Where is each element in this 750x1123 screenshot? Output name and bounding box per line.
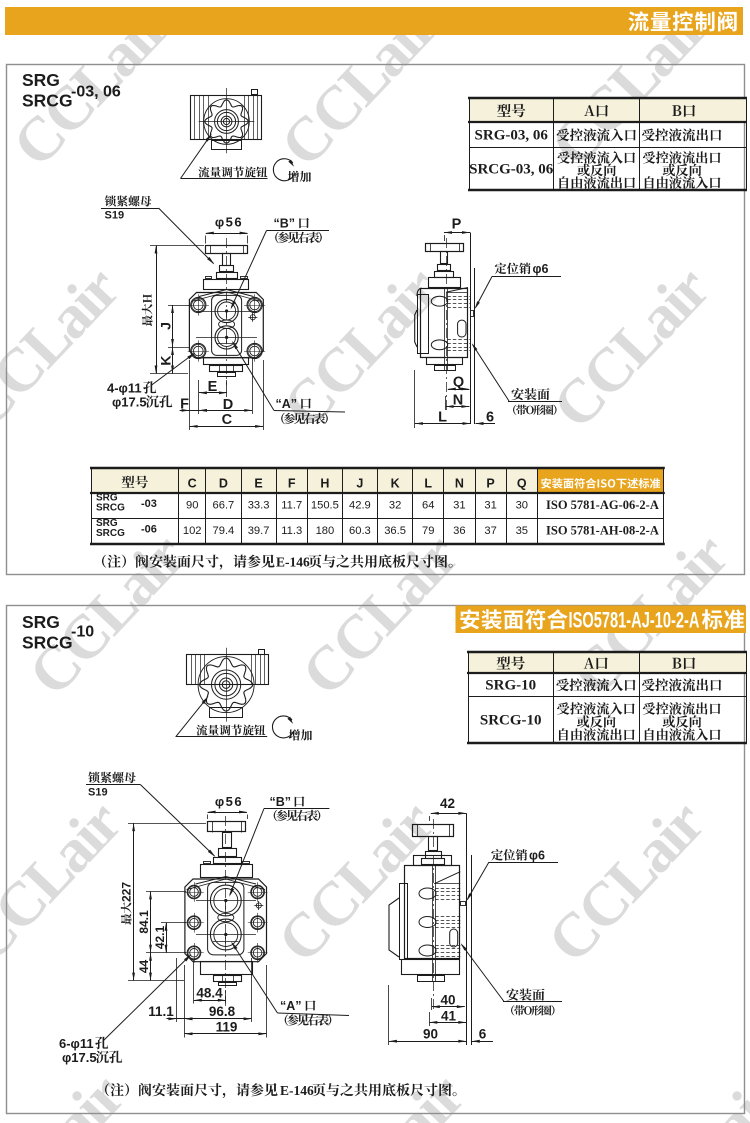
svg-text:CCLair: CCLair [270, 254, 453, 441]
svg-text:SRG-03, 06: SRG-03, 06 [475, 128, 549, 144]
svg-text:“A”: “A” [280, 999, 302, 1013]
svg-text:42.1: 42.1 [153, 925, 167, 949]
svg-text:-06: -06 [141, 524, 157, 536]
svg-text:36.5: 36.5 [384, 525, 406, 537]
svg-text:N: N [455, 477, 464, 491]
svg-text:-10: -10 [71, 624, 94, 641]
svg-text:H: H [320, 477, 329, 491]
svg-text:E-146: E-146 [276, 555, 310, 570]
svg-text:“B”: “B” [274, 217, 296, 231]
svg-text:48.4: 48.4 [196, 986, 223, 1001]
svg-text:S19: S19 [88, 787, 108, 799]
svg-text:P: P [452, 217, 462, 233]
svg-text:33.3: 33.3 [248, 500, 270, 512]
svg-text:150.5: 150.5 [311, 500, 339, 512]
svg-text:D: D [219, 477, 228, 491]
svg-text:35: 35 [516, 525, 528, 537]
svg-text:39.7: 39.7 [248, 525, 270, 537]
svg-text:79.4: 79.4 [213, 525, 235, 537]
svg-text:-03: -03 [141, 498, 157, 510]
svg-text:6: 6 [479, 1027, 487, 1042]
svg-text:J: J [356, 477, 363, 491]
svg-text:60.3: 60.3 [349, 525, 371, 537]
svg-text:J: J [158, 322, 174, 330]
svg-text:ISO 5781-AG-06-2-A: ISO 5781-AG-06-2-A [546, 498, 659, 512]
svg-text:6-φ11: 6-φ11 [59, 1036, 94, 1051]
svg-text:CCLair: CCLair [289, 521, 472, 708]
svg-text:φ6: φ6 [529, 849, 545, 863]
svg-text:CCLair: CCLair [0, 788, 135, 975]
svg-text:CCLair: CCLair [535, 788, 718, 975]
svg-text:41: 41 [441, 1009, 457, 1024]
svg-text:L: L [424, 477, 432, 491]
svg-text:42: 42 [440, 796, 455, 811]
svg-text:90: 90 [186, 500, 198, 512]
svg-text:C: C [188, 477, 197, 491]
svg-text:44: 44 [137, 960, 151, 974]
svg-text:102: 102 [183, 525, 202, 537]
svg-text:-03, 06: -03, 06 [71, 84, 121, 101]
svg-text:Q: Q [517, 477, 527, 491]
svg-text:64: 64 [422, 500, 434, 512]
svg-text:31: 31 [484, 500, 496, 512]
svg-text:“B”: “B” [270, 795, 292, 809]
svg-text:φ56: φ56 [215, 794, 243, 809]
svg-text:E-146: E-146 [280, 1083, 314, 1098]
svg-text:79: 79 [422, 525, 434, 537]
svg-text:31: 31 [453, 500, 465, 512]
svg-text:180: 180 [316, 525, 335, 537]
svg-text:CCLair: CCLair [0, 254, 133, 441]
svg-text:C: C [222, 412, 233, 428]
svg-text:119: 119 [216, 1020, 238, 1035]
svg-text:SRCG: SRCG [22, 91, 73, 111]
svg-text:K: K [391, 477, 400, 491]
svg-text:SRCG: SRCG [22, 633, 73, 653]
svg-text:84.1: 84.1 [137, 910, 151, 934]
svg-text:SRCG-03, 06: SRCG-03, 06 [469, 162, 554, 178]
svg-text:36: 36 [453, 525, 465, 537]
svg-text:32: 32 [389, 500, 401, 512]
svg-text:SRCG: SRCG [96, 528, 125, 539]
svg-text:K: K [158, 355, 174, 365]
svg-text:90: 90 [423, 1027, 438, 1042]
svg-text:S19: S19 [105, 210, 125, 222]
svg-text:30: 30 [516, 500, 528, 512]
svg-text:11.7: 11.7 [281, 500, 302, 512]
svg-text:SRG: SRG [22, 612, 60, 632]
svg-text:CCLair: CCLair [540, 254, 723, 441]
svg-text:φ17.5: φ17.5 [62, 1050, 97, 1065]
svg-text:φ17.5: φ17.5 [112, 395, 147, 410]
svg-text:SRCG-10: SRCG-10 [480, 713, 542, 729]
svg-text:37: 37 [484, 525, 496, 537]
svg-text:227: 227 [120, 882, 134, 902]
svg-text:4-φ11: 4-φ11 [107, 381, 142, 396]
svg-text:φ6: φ6 [533, 262, 549, 276]
svg-text:SRG: SRG [22, 70, 60, 90]
svg-text:ISO 5781-AH-08-2-A: ISO 5781-AH-08-2-A [546, 524, 659, 538]
svg-text:42.9: 42.9 [349, 500, 371, 512]
svg-text:SRCG: SRCG [96, 503, 125, 514]
svg-text:ISO5781-AJ-10-2-A: ISO5781-AJ-10-2-A [569, 608, 700, 633]
svg-text:96.8: 96.8 [209, 1004, 236, 1019]
svg-text:11.3: 11.3 [281, 525, 302, 537]
svg-text:11.1: 11.1 [148, 1004, 174, 1019]
svg-text:40: 40 [440, 993, 455, 1008]
svg-text:F: F [288, 477, 296, 491]
svg-text:SRG-10: SRG-10 [485, 678, 536, 694]
svg-text:P: P [486, 477, 494, 491]
svg-text:φ56: φ56 [215, 215, 243, 230]
svg-text:“A”: “A” [276, 397, 298, 411]
svg-text:66.7: 66.7 [213, 500, 235, 512]
svg-text:E: E [254, 477, 262, 491]
